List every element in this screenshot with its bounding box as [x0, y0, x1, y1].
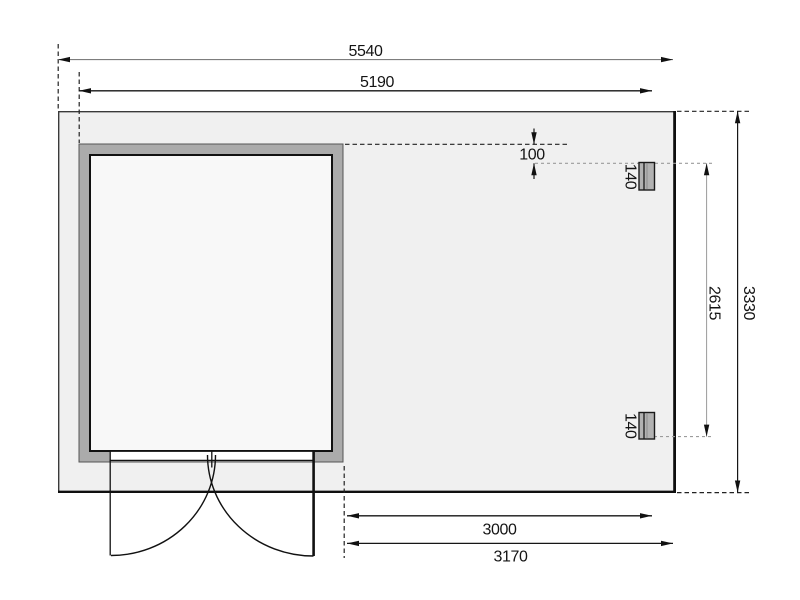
dimension-overall-width: 5540 [58, 43, 673, 62]
dimension-cabin-width: 5190 [79, 74, 652, 94]
arrowhead-right [661, 541, 673, 546]
dimension-post-bottom-size: 140 [622, 413, 639, 439]
arrowhead-left [347, 513, 359, 518]
dimension-label-post-bottom-size: 140 [622, 413, 639, 439]
roof-post-bottom [639, 413, 655, 440]
dimension-label-post-span: 2615 [706, 286, 723, 320]
arrowhead-left [58, 57, 70, 62]
dimension-annex-overall-width: 3170 [347, 541, 673, 566]
cabin-interior [90, 155, 332, 451]
arrowhead-left [347, 541, 359, 546]
arrowhead-down [735, 481, 740, 493]
dimension-overall-depth: 3330 [735, 111, 757, 492]
dimension-label-post-top-size: 140 [622, 164, 639, 190]
dimension-label-cabin-width: 5190 [360, 74, 394, 91]
dimension-annex-width: 3000 [347, 513, 652, 538]
dimension-label-overall-width: 5540 [349, 43, 383, 60]
cabin-room [79, 144, 343, 462]
arrowhead-up [735, 111, 740, 123]
arrowhead-right [640, 513, 652, 518]
dimension-label-offset-100: 100 [519, 147, 545, 164]
roof-post-top [639, 163, 655, 191]
dimension-label-overall-depth: 3330 [740, 286, 757, 320]
dimension-post-top-size: 140 [622, 164, 639, 190]
arrowhead-left [79, 88, 91, 93]
arrowhead-up [704, 163, 709, 175]
arrowhead-right [661, 57, 673, 62]
dimension-post-span: 2615 [704, 163, 723, 436]
dimension-label-annex-width: 3000 [483, 522, 517, 539]
arrowhead-right [640, 88, 652, 93]
arrowhead-down [704, 425, 709, 437]
dimension-label-annex-overall-width: 3170 [494, 549, 528, 566]
blueprint-canvas: 5540 5190 100 140 140 2615 3330 [0, 0, 800, 600]
